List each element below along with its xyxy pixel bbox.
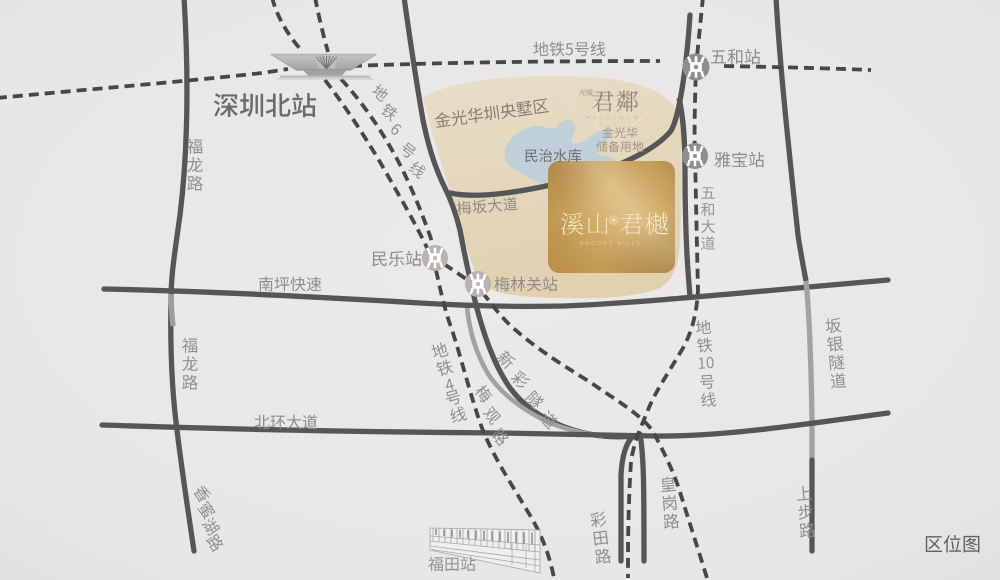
svg-text:BROOKY HILLS: BROOKY HILLS xyxy=(580,241,642,247)
svg-text:W E L L I N A M: W E L L I N A M xyxy=(585,115,639,120)
